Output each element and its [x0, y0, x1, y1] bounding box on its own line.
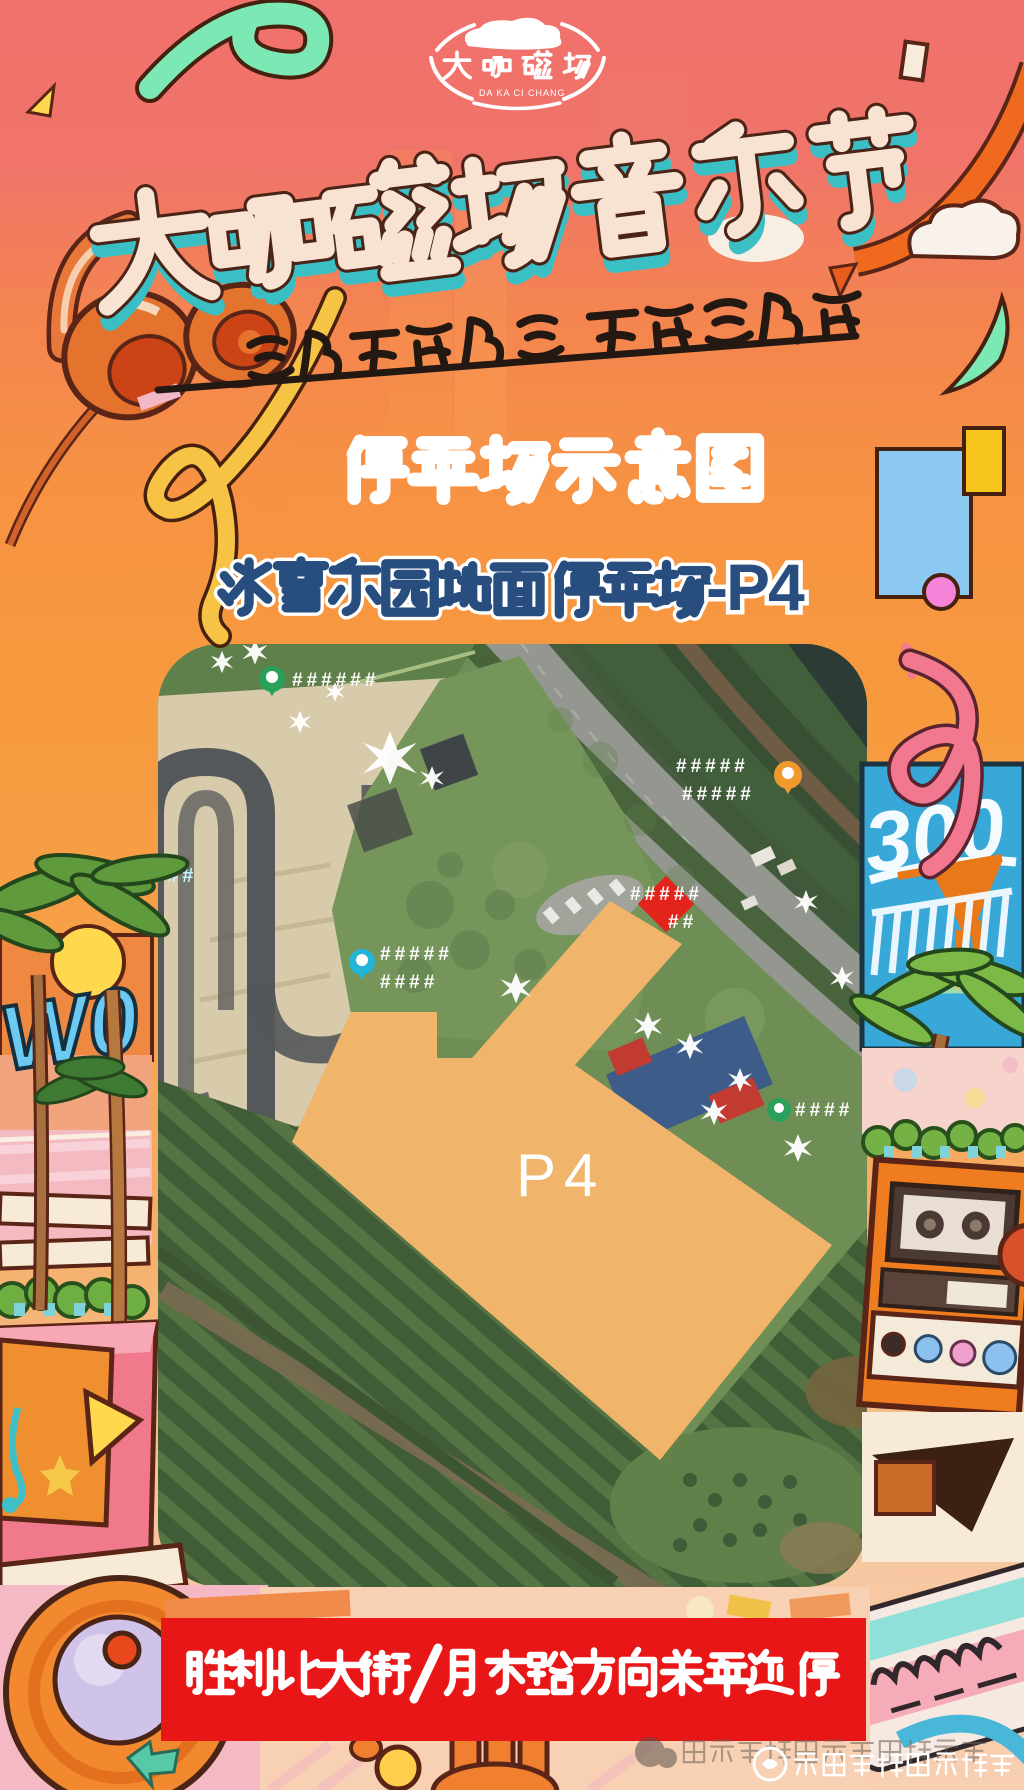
svg-text:#####: ##### [676, 756, 749, 777]
svg-text:####: #### [380, 972, 438, 993]
svg-text:#####: ##### [630, 884, 703, 905]
svg-text:-P4: -P4 [706, 550, 805, 624]
svg-text:#####: ##### [380, 944, 453, 965]
svg-text:P4: P4 [516, 1142, 605, 1209]
svg-text:DA KA CI CHANG: DA KA CI CHANG [479, 88, 566, 98]
svg-text:##: ## [668, 912, 697, 933]
svg-text:####: #### [795, 1100, 853, 1121]
svg-text:#####: ##### [682, 784, 755, 805]
svg-text:######: ###### [292, 670, 379, 691]
